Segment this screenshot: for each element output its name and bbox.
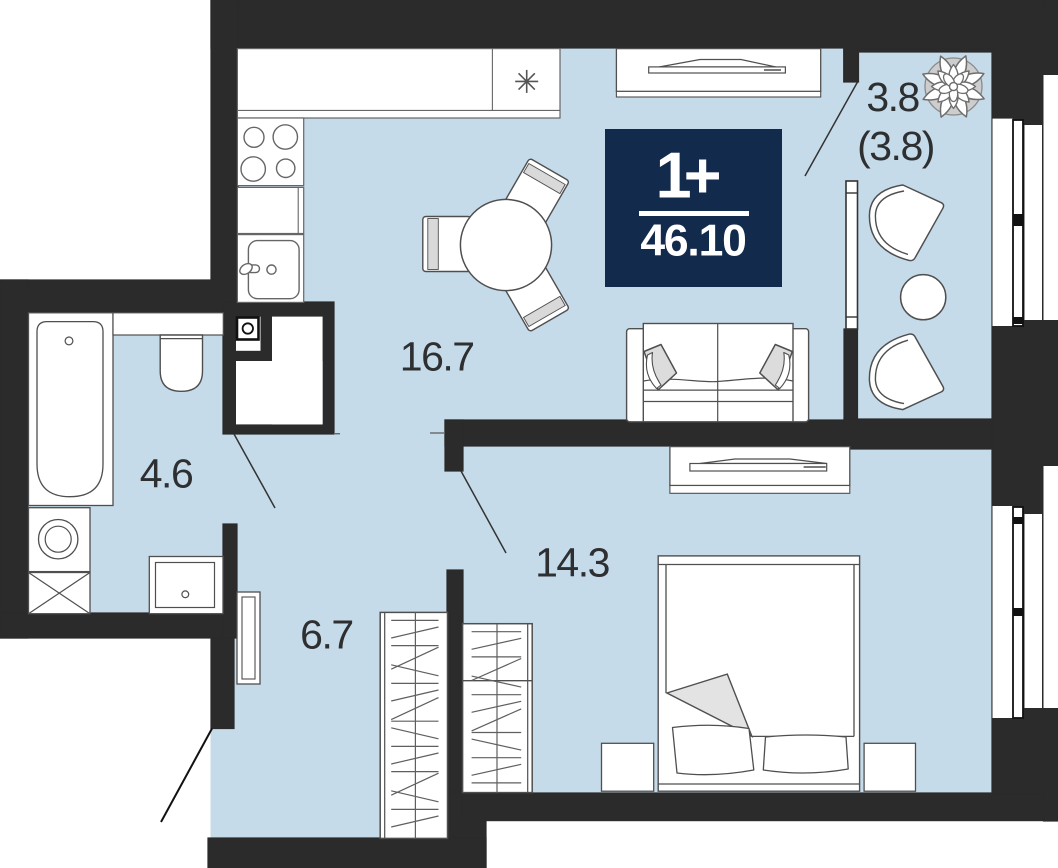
- svg-text:6.7: 6.7: [300, 612, 353, 658]
- svg-text:(3.8): (3.8): [857, 123, 934, 169]
- svg-text:3.8: 3.8: [866, 74, 919, 120]
- svg-text:14.3: 14.3: [535, 540, 609, 586]
- svg-text:46.10: 46.10: [640, 217, 745, 266]
- svg-text:1+: 1+: [655, 139, 719, 212]
- svg-text:16.7: 16.7: [400, 333, 474, 379]
- svg-text:4.6: 4.6: [140, 450, 193, 496]
